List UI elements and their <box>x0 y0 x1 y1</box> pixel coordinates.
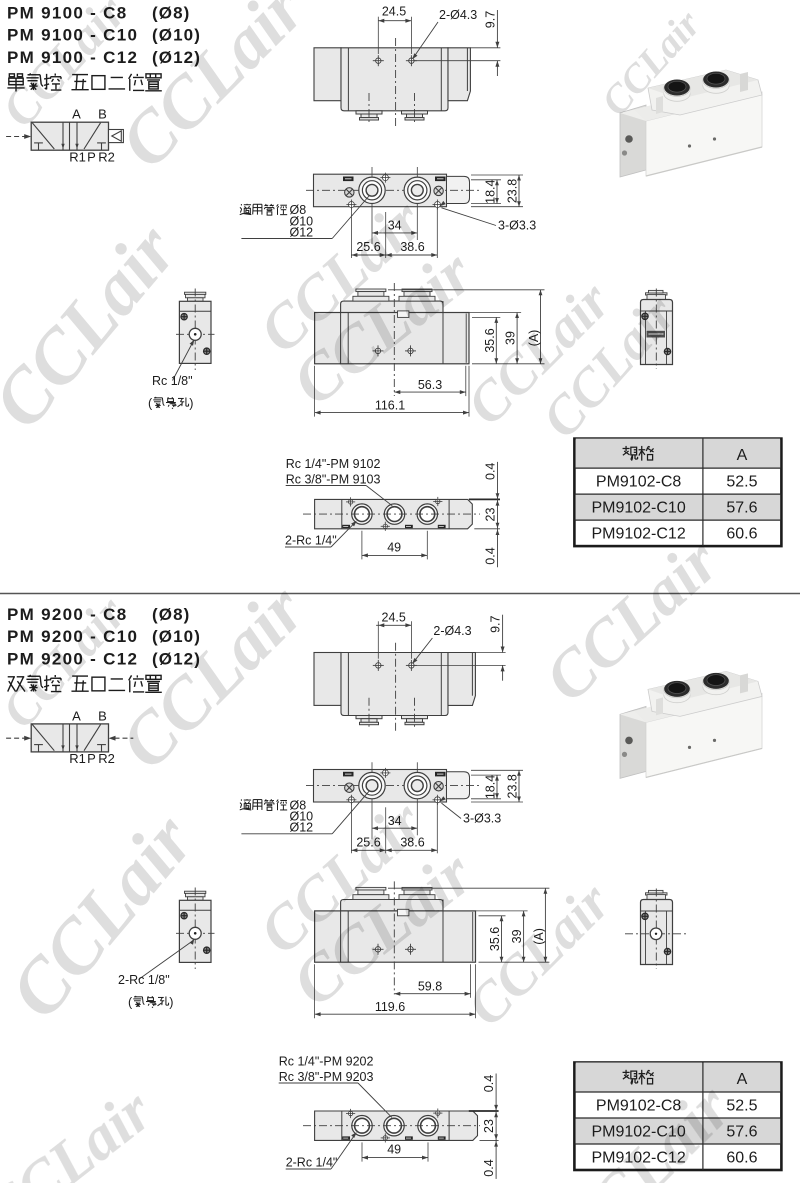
svg-text:23.8: 23.8 <box>506 774 520 798</box>
svg-text:23: 23 <box>484 508 498 522</box>
svg-text:R2: R2 <box>98 150 115 165</box>
svg-text:A: A <box>72 107 81 122</box>
svg-text:9.7: 9.7 <box>483 11 497 28</box>
svg-text:59.8: 59.8 <box>418 980 442 994</box>
svg-text:A: A <box>737 447 748 464</box>
svg-text:R2: R2 <box>98 751 115 766</box>
svg-text:49: 49 <box>387 541 401 555</box>
svg-text:R1: R1 <box>69 751 86 766</box>
svg-text:R1: R1 <box>69 150 86 165</box>
svg-text:0.4: 0.4 <box>482 1075 496 1092</box>
svg-text:57.6: 57.6 <box>726 500 757 517</box>
svg-text:0.4: 0.4 <box>482 1159 496 1176</box>
svg-text:24.5: 24.5 <box>382 611 406 625</box>
svg-text:18.4: 18.4 <box>484 179 498 203</box>
svg-text:): ) <box>189 397 193 411</box>
svg-text:Rc 1/4"-PM 9102: Rc 1/4"-PM 9102 <box>286 457 381 471</box>
svg-text:23.8: 23.8 <box>506 179 520 203</box>
svg-text:56.3: 56.3 <box>418 378 442 392</box>
svg-text:Rc 1/8": Rc 1/8" <box>152 374 193 388</box>
svg-text:Rc 3/8"-PM 9203: Rc 3/8"-PM 9203 <box>279 1070 374 1084</box>
svg-text:(Ø8): (Ø8) <box>152 3 190 22</box>
svg-text:B: B <box>98 107 107 122</box>
svg-text:2-Ø4.3: 2-Ø4.3 <box>439 8 477 22</box>
svg-text:0.4: 0.4 <box>484 547 498 564</box>
svg-text:49: 49 <box>387 1143 401 1157</box>
svg-text:9.7: 9.7 <box>489 615 503 632</box>
svg-text:2-Ø4.3: 2-Ø4.3 <box>433 624 471 638</box>
svg-text:60.6: 60.6 <box>726 1150 757 1167</box>
svg-text:119.6: 119.6 <box>375 1000 405 1014</box>
svg-text:A: A <box>72 708 81 723</box>
svg-text:3-Ø3.3: 3-Ø3.3 <box>498 219 536 233</box>
svg-text:3-Ø3.3: 3-Ø3.3 <box>463 812 501 826</box>
svg-text:PM9102-C8: PM9102-C8 <box>596 474 681 491</box>
svg-text:18.4: 18.4 <box>484 775 498 799</box>
svg-text:): ) <box>169 996 173 1010</box>
svg-text:24.5: 24.5 <box>382 5 406 19</box>
svg-text:Rc 1/4"-PM 9202: Rc 1/4"-PM 9202 <box>279 1055 374 1069</box>
svg-text:P: P <box>87 150 96 165</box>
svg-text:2-Rc 1/8": 2-Rc 1/8" <box>118 973 170 987</box>
svg-text:B: B <box>98 708 107 723</box>
svg-text:(Ø8): (Ø8) <box>152 605 190 624</box>
svg-text:116.1: 116.1 <box>375 399 405 413</box>
svg-text:35.6: 35.6 <box>483 328 497 352</box>
svg-text:52.5: 52.5 <box>726 474 757 491</box>
svg-text:A: A <box>737 1071 748 1088</box>
svg-text:60.6: 60.6 <box>726 526 757 543</box>
svg-text:Rc 3/8"-PM 9103: Rc 3/8"-PM 9103 <box>286 472 381 486</box>
svg-text:Ø12: Ø12 <box>290 225 314 239</box>
svg-text:P: P <box>87 751 96 766</box>
svg-text:0.4: 0.4 <box>484 463 498 480</box>
svg-text:2-Rc 1/4": 2-Rc 1/4" <box>286 1156 338 1170</box>
svg-text:2-Rc 1/4": 2-Rc 1/4" <box>285 534 337 548</box>
svg-text:23: 23 <box>482 1119 496 1133</box>
svg-text:Ø12: Ø12 <box>290 821 314 835</box>
svg-text:PM9102-C10: PM9102-C10 <box>591 500 685 517</box>
svg-text:35.6: 35.6 <box>488 927 502 951</box>
